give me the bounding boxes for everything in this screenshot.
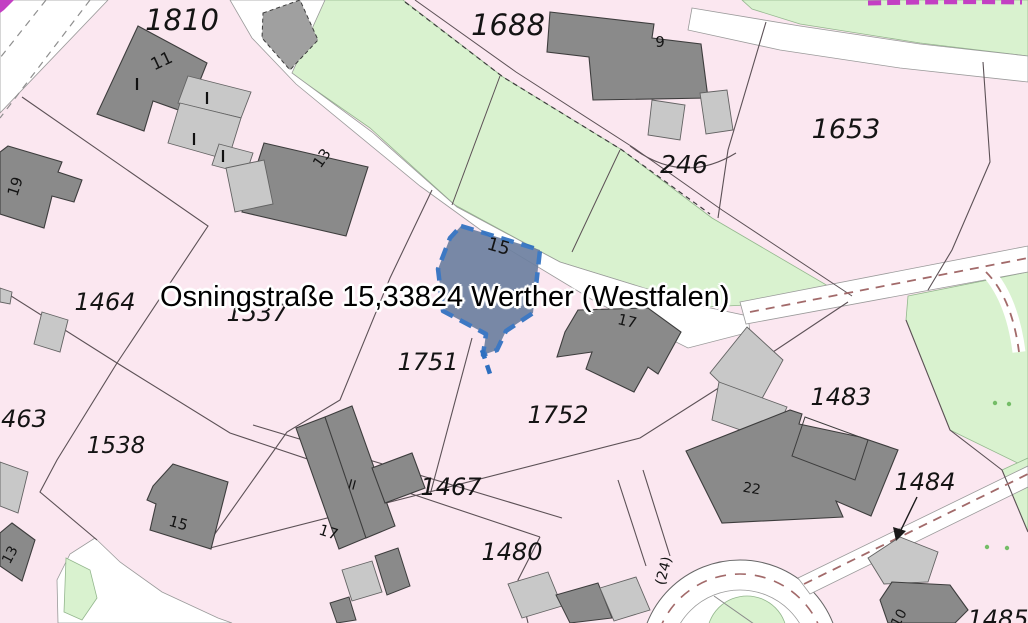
house-number-22: 22: [742, 480, 762, 499]
parcel-label-1480: 1480: [481, 538, 542, 566]
parcel-label-1485: 1485: [967, 605, 1028, 623]
vegetation-dot-2: [1007, 402, 1011, 406]
vegetation-dot-4: [1005, 546, 1009, 550]
cadastral-map-view[interactable]: 1810168816532461464153717511752148346315…: [0, 0, 1028, 623]
parcel-label-246: 246: [660, 150, 708, 179]
parcel-label-1752: 1752: [527, 401, 588, 429]
parcel-label-1751: 1751: [397, 348, 458, 376]
parcel-label-1464: 1464: [74, 288, 135, 316]
parcel-label-463: 463: [1, 405, 47, 433]
building-9-annex-a: [648, 100, 685, 140]
parcel-label-1467: 1467: [420, 473, 482, 501]
parcel-label-1484: 1484: [894, 468, 955, 496]
house-number-9: 9: [655, 33, 665, 51]
vegetation-dot-3: [985, 545, 989, 549]
building-13-annex: [226, 160, 273, 212]
parcel-label-1688: 1688: [471, 8, 545, 42]
parcel-label-1538: 1538: [87, 433, 146, 459]
parcel-label-1483: 1483: [810, 383, 871, 411]
address-overlay: Osningstraße 15,33824 Werther (Westfalen…: [160, 281, 730, 314]
building-9-annex-b: [700, 90, 733, 134]
parcel-label-1810: 1810: [145, 3, 219, 37]
parcel-label-1653: 1653: [812, 114, 881, 145]
vegetation-dot-1: [993, 401, 997, 405]
